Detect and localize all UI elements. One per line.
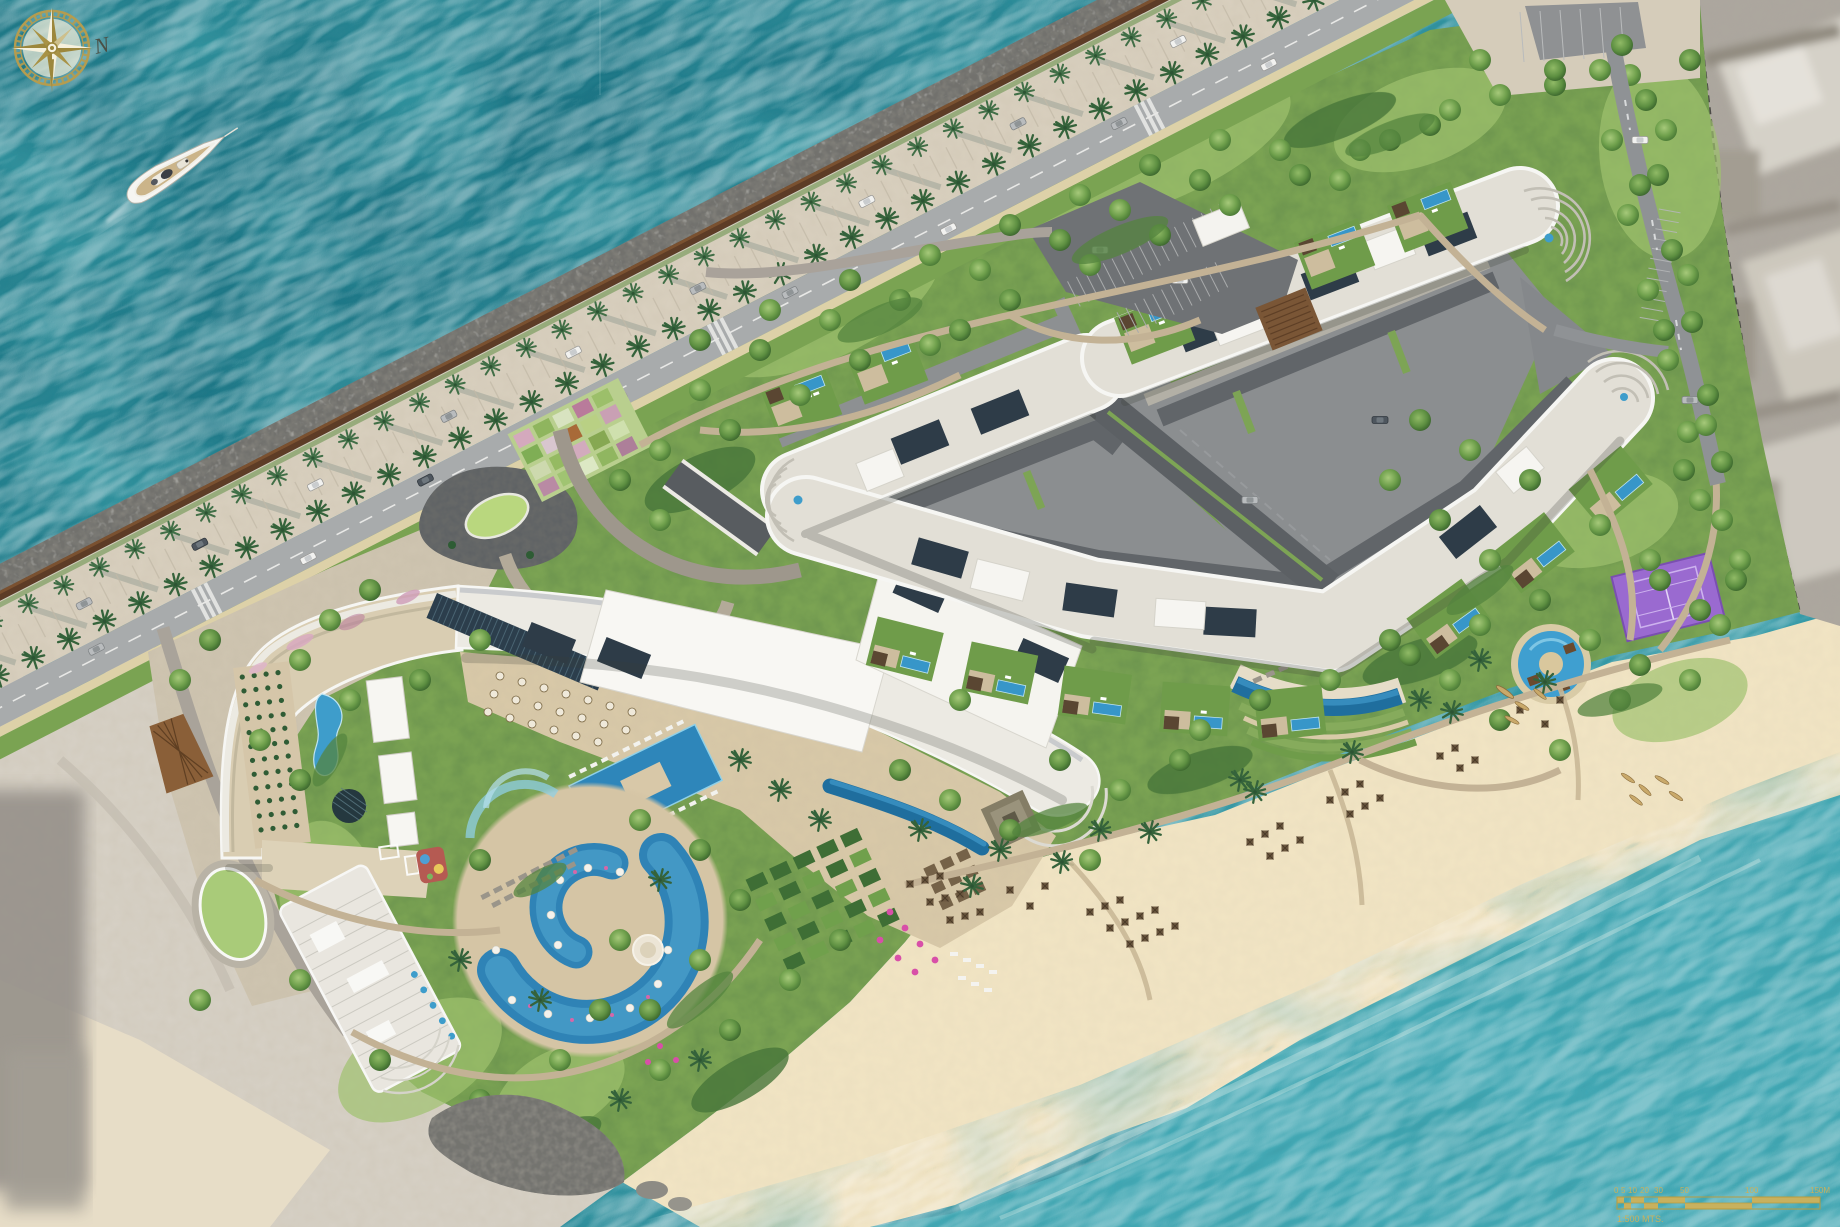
svg-text:30: 30: [1654, 1186, 1663, 1195]
svg-text:100: 100: [1745, 1186, 1759, 1195]
svg-text:20: 20: [1640, 1186, 1649, 1195]
svg-text:10: 10: [1628, 1186, 1637, 1195]
svg-text:150M: 150M: [1810, 1186, 1830, 1195]
svg-text:1:500 MTS.: 1:500 MTS.: [1617, 1214, 1664, 1224]
svg-text:50: 50: [1680, 1186, 1689, 1195]
svg-text:0: 0: [1614, 1186, 1619, 1195]
svg-text:5: 5: [1621, 1186, 1626, 1195]
